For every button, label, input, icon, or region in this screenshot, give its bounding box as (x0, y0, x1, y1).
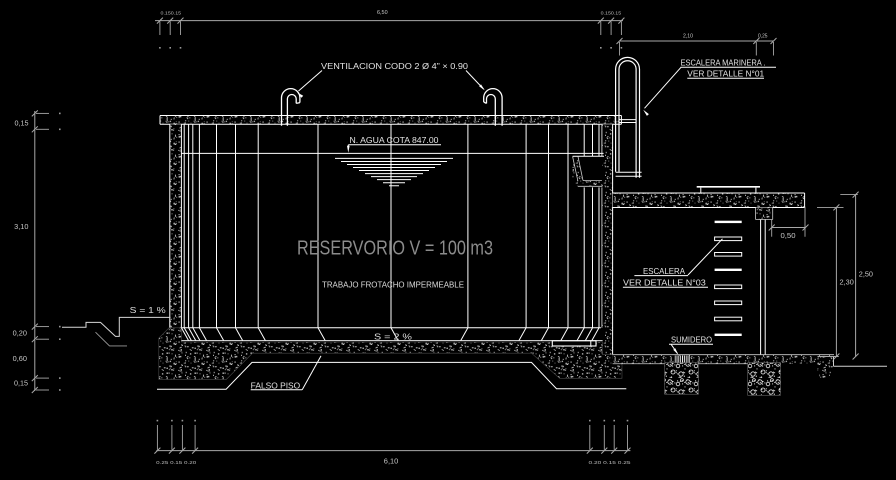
svg-text:0,60: 0,60 (13, 354, 27, 363)
svg-text:0.25 0.15 0.20: 0.25 0.15 0.20 (156, 460, 197, 465)
svg-text:0.150.15: 0.150.15 (161, 10, 182, 15)
svg-text:SUMIDERO: SUMIDERO (671, 336, 712, 345)
svg-text:TRABAJO FROTACHO IMPERMEABLE: TRABAJO FROTACHO IMPERMEABLE (322, 281, 464, 290)
svg-text:0,15: 0,15 (15, 118, 29, 127)
svg-text:6,50: 6,50 (377, 10, 388, 16)
svg-text:0,15: 0,15 (14, 379, 28, 388)
svg-text:2,10: 2,10 (683, 33, 693, 39)
svg-text:S = 1 %: S = 1 % (130, 306, 166, 315)
svg-text:0.20 0.15 0.25: 0.20 0.15 0.25 (589, 460, 632, 465)
svg-text:S = 2 %: S = 2 % (374, 333, 412, 342)
svg-text:3,10: 3,10 (14, 222, 28, 231)
svg-text:2,30: 2,30 (840, 278, 854, 287)
svg-text:0.150.15: 0.150.15 (601, 10, 622, 15)
svg-text:N. AGUA COTA 847.00: N. AGUA COTA 847.00 (350, 136, 440, 145)
svg-text:2,50: 2,50 (859, 269, 873, 278)
svg-text:ESCALERA: ESCALERA (643, 267, 686, 276)
svg-text:VER DETALLE N°01: VER DETALLE N°01 (687, 70, 764, 79)
svg-text:0,25: 0,25 (758, 33, 768, 39)
svg-text:FALSO PISO: FALSO PISO (251, 381, 301, 390)
svg-text:ESCALERA MARINERA .: ESCALERA MARINERA . (681, 59, 766, 68)
svg-text:VENTILACION CODO 2 Ø 4” × 0.90: VENTILACION CODO 2 Ø 4” × 0.90 (321, 61, 468, 71)
svg-text:0,20: 0,20 (13, 328, 27, 337)
svg-text:0,50: 0,50 (781, 231, 796, 240)
svg-text:6,10: 6,10 (384, 458, 399, 465)
svg-text:VER DETALLE N°03: VER DETALLE N°03 (623, 278, 706, 287)
svg-text:RESERVORIO V = 100 m3: RESERVORIO V = 100 m3 (297, 236, 493, 259)
